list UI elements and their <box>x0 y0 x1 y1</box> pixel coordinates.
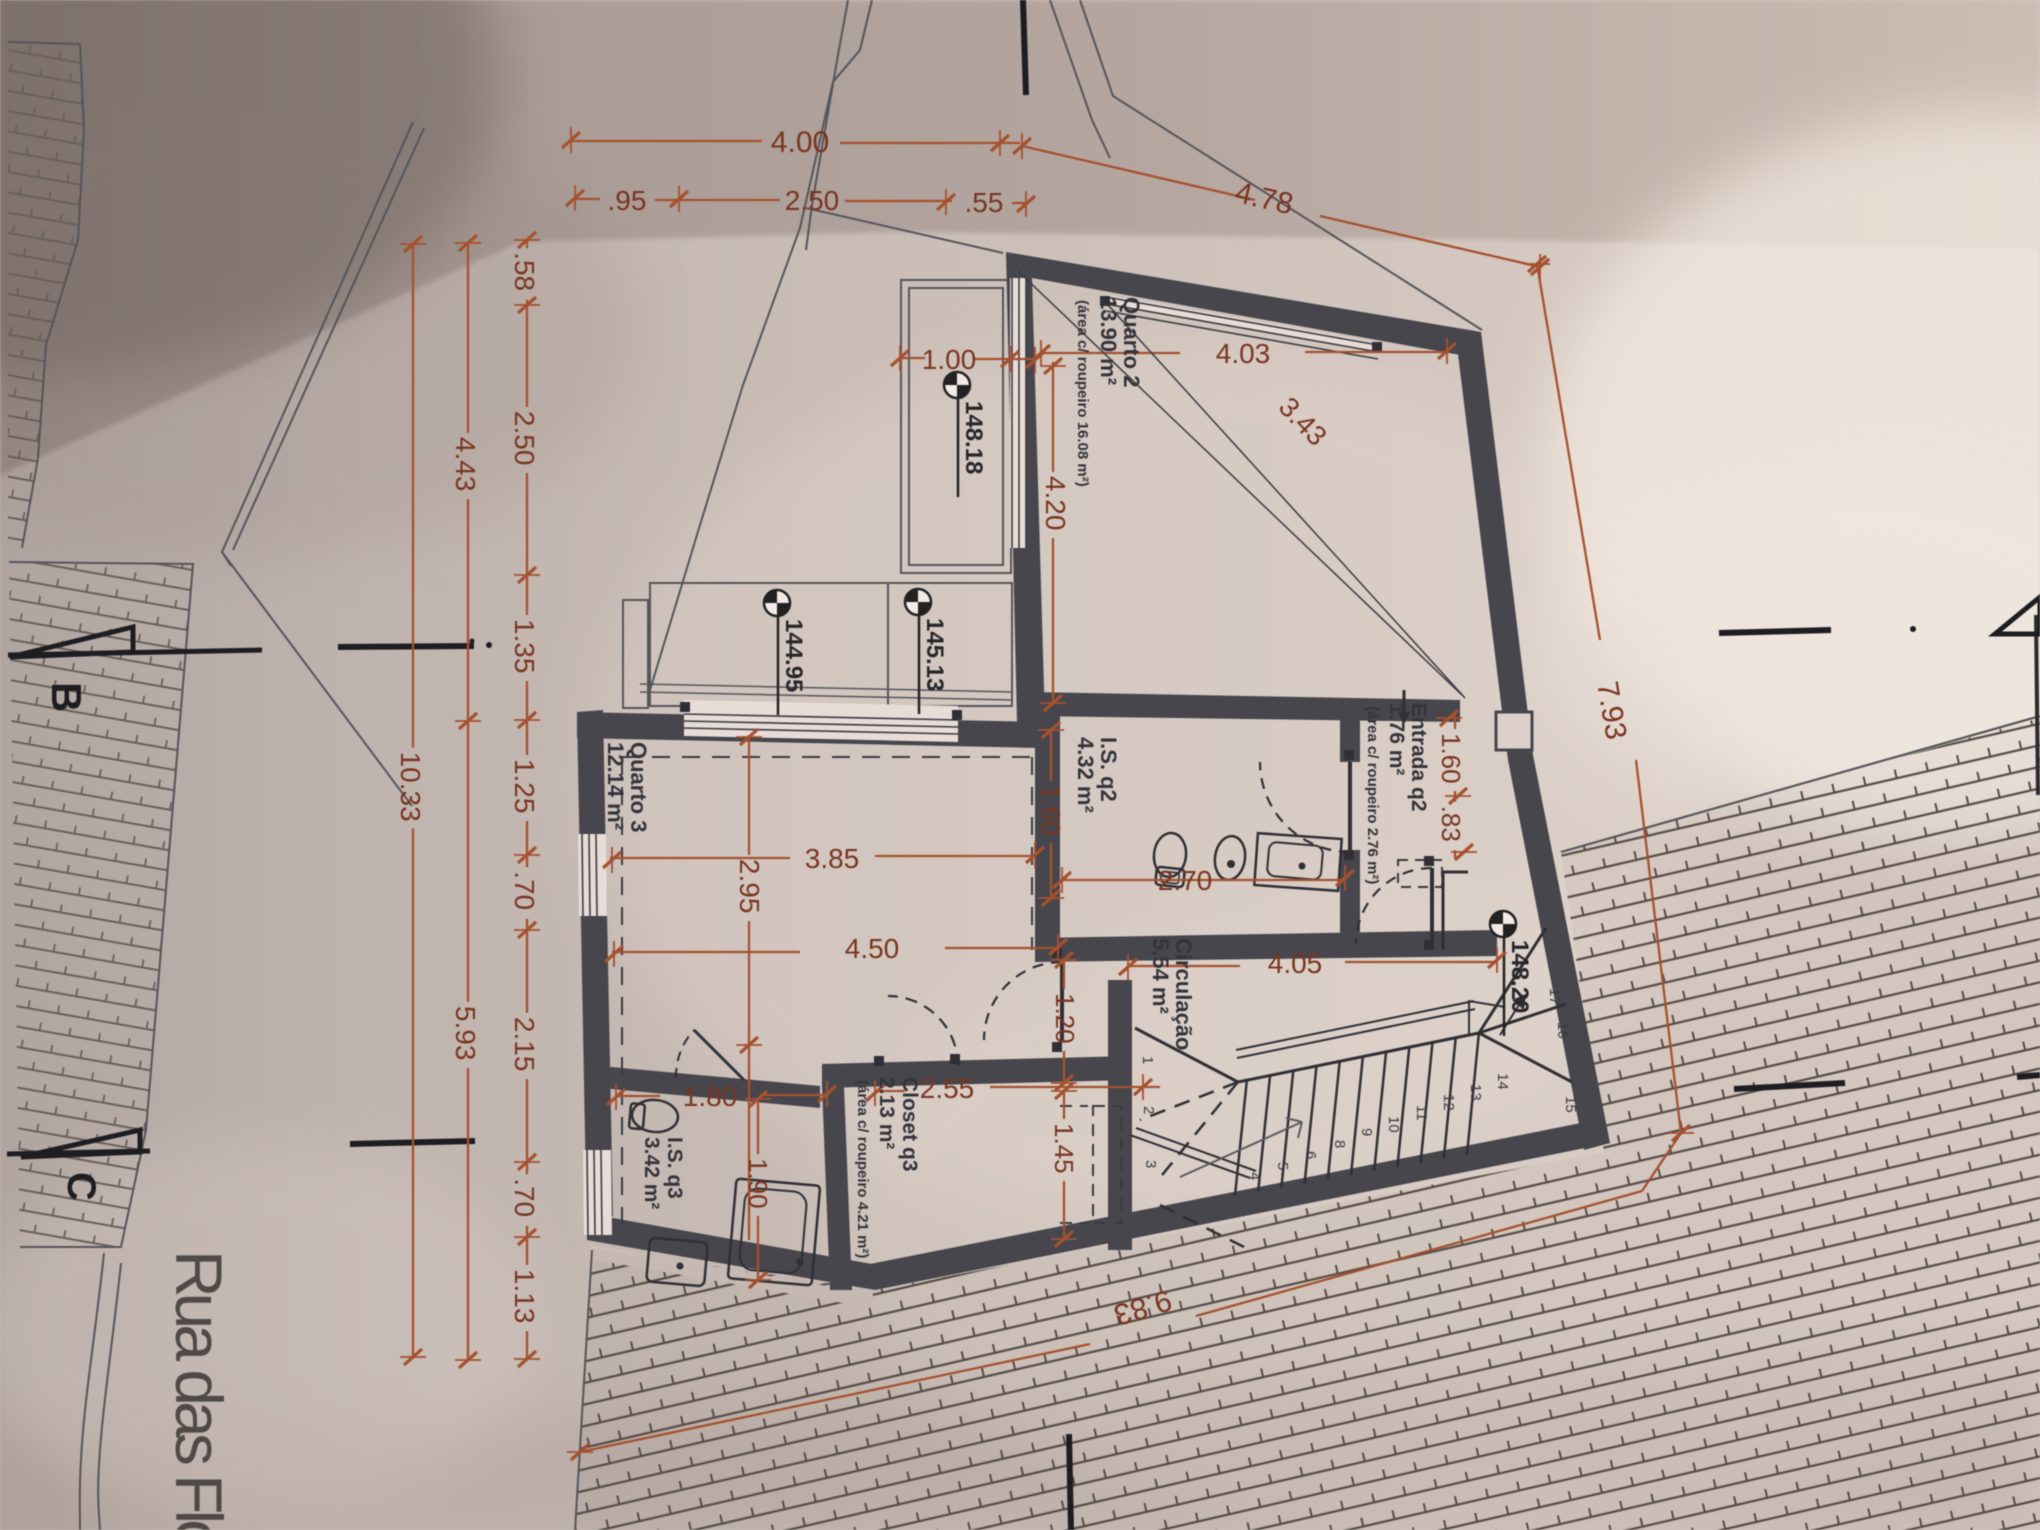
svg-text:4.43: 4.43 <box>450 437 481 492</box>
svg-text:Circulação: Circulação <box>1171 938 1196 1051</box>
svg-text:Closet q3: Closet q3 <box>898 1077 921 1172</box>
svg-text:(área c/ roupeiro 2.76 m²): (área c/ roupeiro 2.76 m²) <box>1364 706 1381 884</box>
svg-text:12.14 m²: 12.14 m² <box>603 742 628 830</box>
svg-text:2.13 m²: 2.13 m² <box>875 1077 898 1149</box>
svg-text:1.20: 1.20 <box>1050 993 1080 1044</box>
svg-text:1.60: 1.60 <box>1436 733 1466 784</box>
svg-text:4.00: 4.00 <box>771 126 829 159</box>
svg-text:I.S. q3: I.S. q3 <box>663 1137 686 1199</box>
svg-text:1.45: 1.45 <box>1049 1123 1079 1174</box>
svg-text:2.95: 2.95 <box>734 859 765 914</box>
svg-text:13: 13 <box>1467 1084 1484 1101</box>
svg-text:4.03: 4.03 <box>1216 338 1271 369</box>
svg-text:11: 11 <box>1413 1105 1430 1121</box>
svg-text:10: 10 <box>1385 1116 1402 1133</box>
svg-text:.83: .83 <box>1436 806 1466 842</box>
svg-text:Rua das Flores: Rua das Flores <box>162 1250 236 1530</box>
svg-text:9: 9 <box>1358 1128 1375 1136</box>
svg-text:.55: .55 <box>965 187 1004 218</box>
svg-text:(área c/ roupeiro 4.21 m²): (área c/ roupeiro 4.21 m²) <box>854 1080 871 1258</box>
svg-text:.70: .70 <box>509 1178 540 1217</box>
svg-text:15: 15 <box>1562 1096 1579 1113</box>
svg-text:8: 8 <box>1331 1140 1348 1148</box>
svg-text:2: 2 <box>1140 1106 1157 1114</box>
svg-text:1: 1 <box>1139 1056 1156 1064</box>
svg-text:4.50: 4.50 <box>845 933 900 964</box>
svg-text:Quarto 3: Quarto 3 <box>626 742 651 832</box>
svg-text:5.54 m²: 5.54 m² <box>1148 938 1173 1014</box>
svg-text:148.18: 148.18 <box>960 401 987 474</box>
svg-text:B: B <box>43 682 90 712</box>
svg-text:14: 14 <box>1494 1073 1511 1090</box>
svg-text:Quarto 2: Quarto 2 <box>1119 297 1144 387</box>
svg-text:148.20: 148.20 <box>1506 940 1533 1013</box>
svg-text:(área c/ roupeiro 16.08 m²): (área c/ roupeiro 16.08 m²) <box>1074 300 1091 487</box>
svg-text:17: 17 <box>1546 988 1563 1005</box>
svg-text:3: 3 <box>1142 1160 1159 1168</box>
svg-text:1.00: 1.00 <box>922 344 977 375</box>
svg-text:3.85: 3.85 <box>805 843 860 874</box>
svg-text:Entrada q2: Entrada q2 <box>1407 703 1430 812</box>
svg-text:2.15: 2.15 <box>509 1017 540 1072</box>
svg-text:I.S. q2: I.S. q2 <box>1096 737 1121 802</box>
svg-text:1.76 m²: 1.76 m² <box>1385 703 1408 775</box>
svg-text:12: 12 <box>1440 1094 1457 1111</box>
svg-text:2.55: 2.55 <box>920 1073 975 1104</box>
svg-text:10.33: 10.33 <box>395 752 426 822</box>
svg-text:2.70: 2.70 <box>1158 865 1213 896</box>
svg-text:.70: .70 <box>509 871 540 910</box>
svg-text:2.50: 2.50 <box>785 185 840 216</box>
svg-text:6: 6 <box>1302 1151 1319 1159</box>
svg-text:1.90: 1.90 <box>743 1158 773 1209</box>
svg-text:5.93: 5.93 <box>450 1006 481 1061</box>
svg-text:.58: .58 <box>509 252 540 291</box>
svg-text:1.25: 1.25 <box>509 759 540 814</box>
svg-text:.95: .95 <box>608 185 647 216</box>
svg-text:4.20: 4.20 <box>1040 476 1071 531</box>
svg-text:16: 16 <box>1554 1022 1571 1039</box>
svg-text:3.42 m²: 3.42 m² <box>640 1137 663 1209</box>
svg-text:2.50: 2.50 <box>509 411 540 466</box>
svg-text:5: 5 <box>1274 1162 1291 1170</box>
svg-text:145.13: 145.13 <box>921 618 948 691</box>
svg-text:4.05: 4.05 <box>1268 948 1323 979</box>
svg-text:13.90 m²: 13.90 m² <box>1096 297 1121 385</box>
svg-text:1.35: 1.35 <box>509 619 540 674</box>
svg-text:1.13: 1.13 <box>509 1269 540 1324</box>
svg-text:4: 4 <box>1246 1172 1263 1180</box>
svg-text:4.32 m²: 4.32 m² <box>1073 737 1098 813</box>
svg-text:C: C <box>59 1172 103 1201</box>
svg-text:1.60: 1.60 <box>1036 785 1066 836</box>
svg-text:1.80: 1.80 <box>683 1081 738 1112</box>
svg-text:144.95: 144.95 <box>780 619 807 692</box>
